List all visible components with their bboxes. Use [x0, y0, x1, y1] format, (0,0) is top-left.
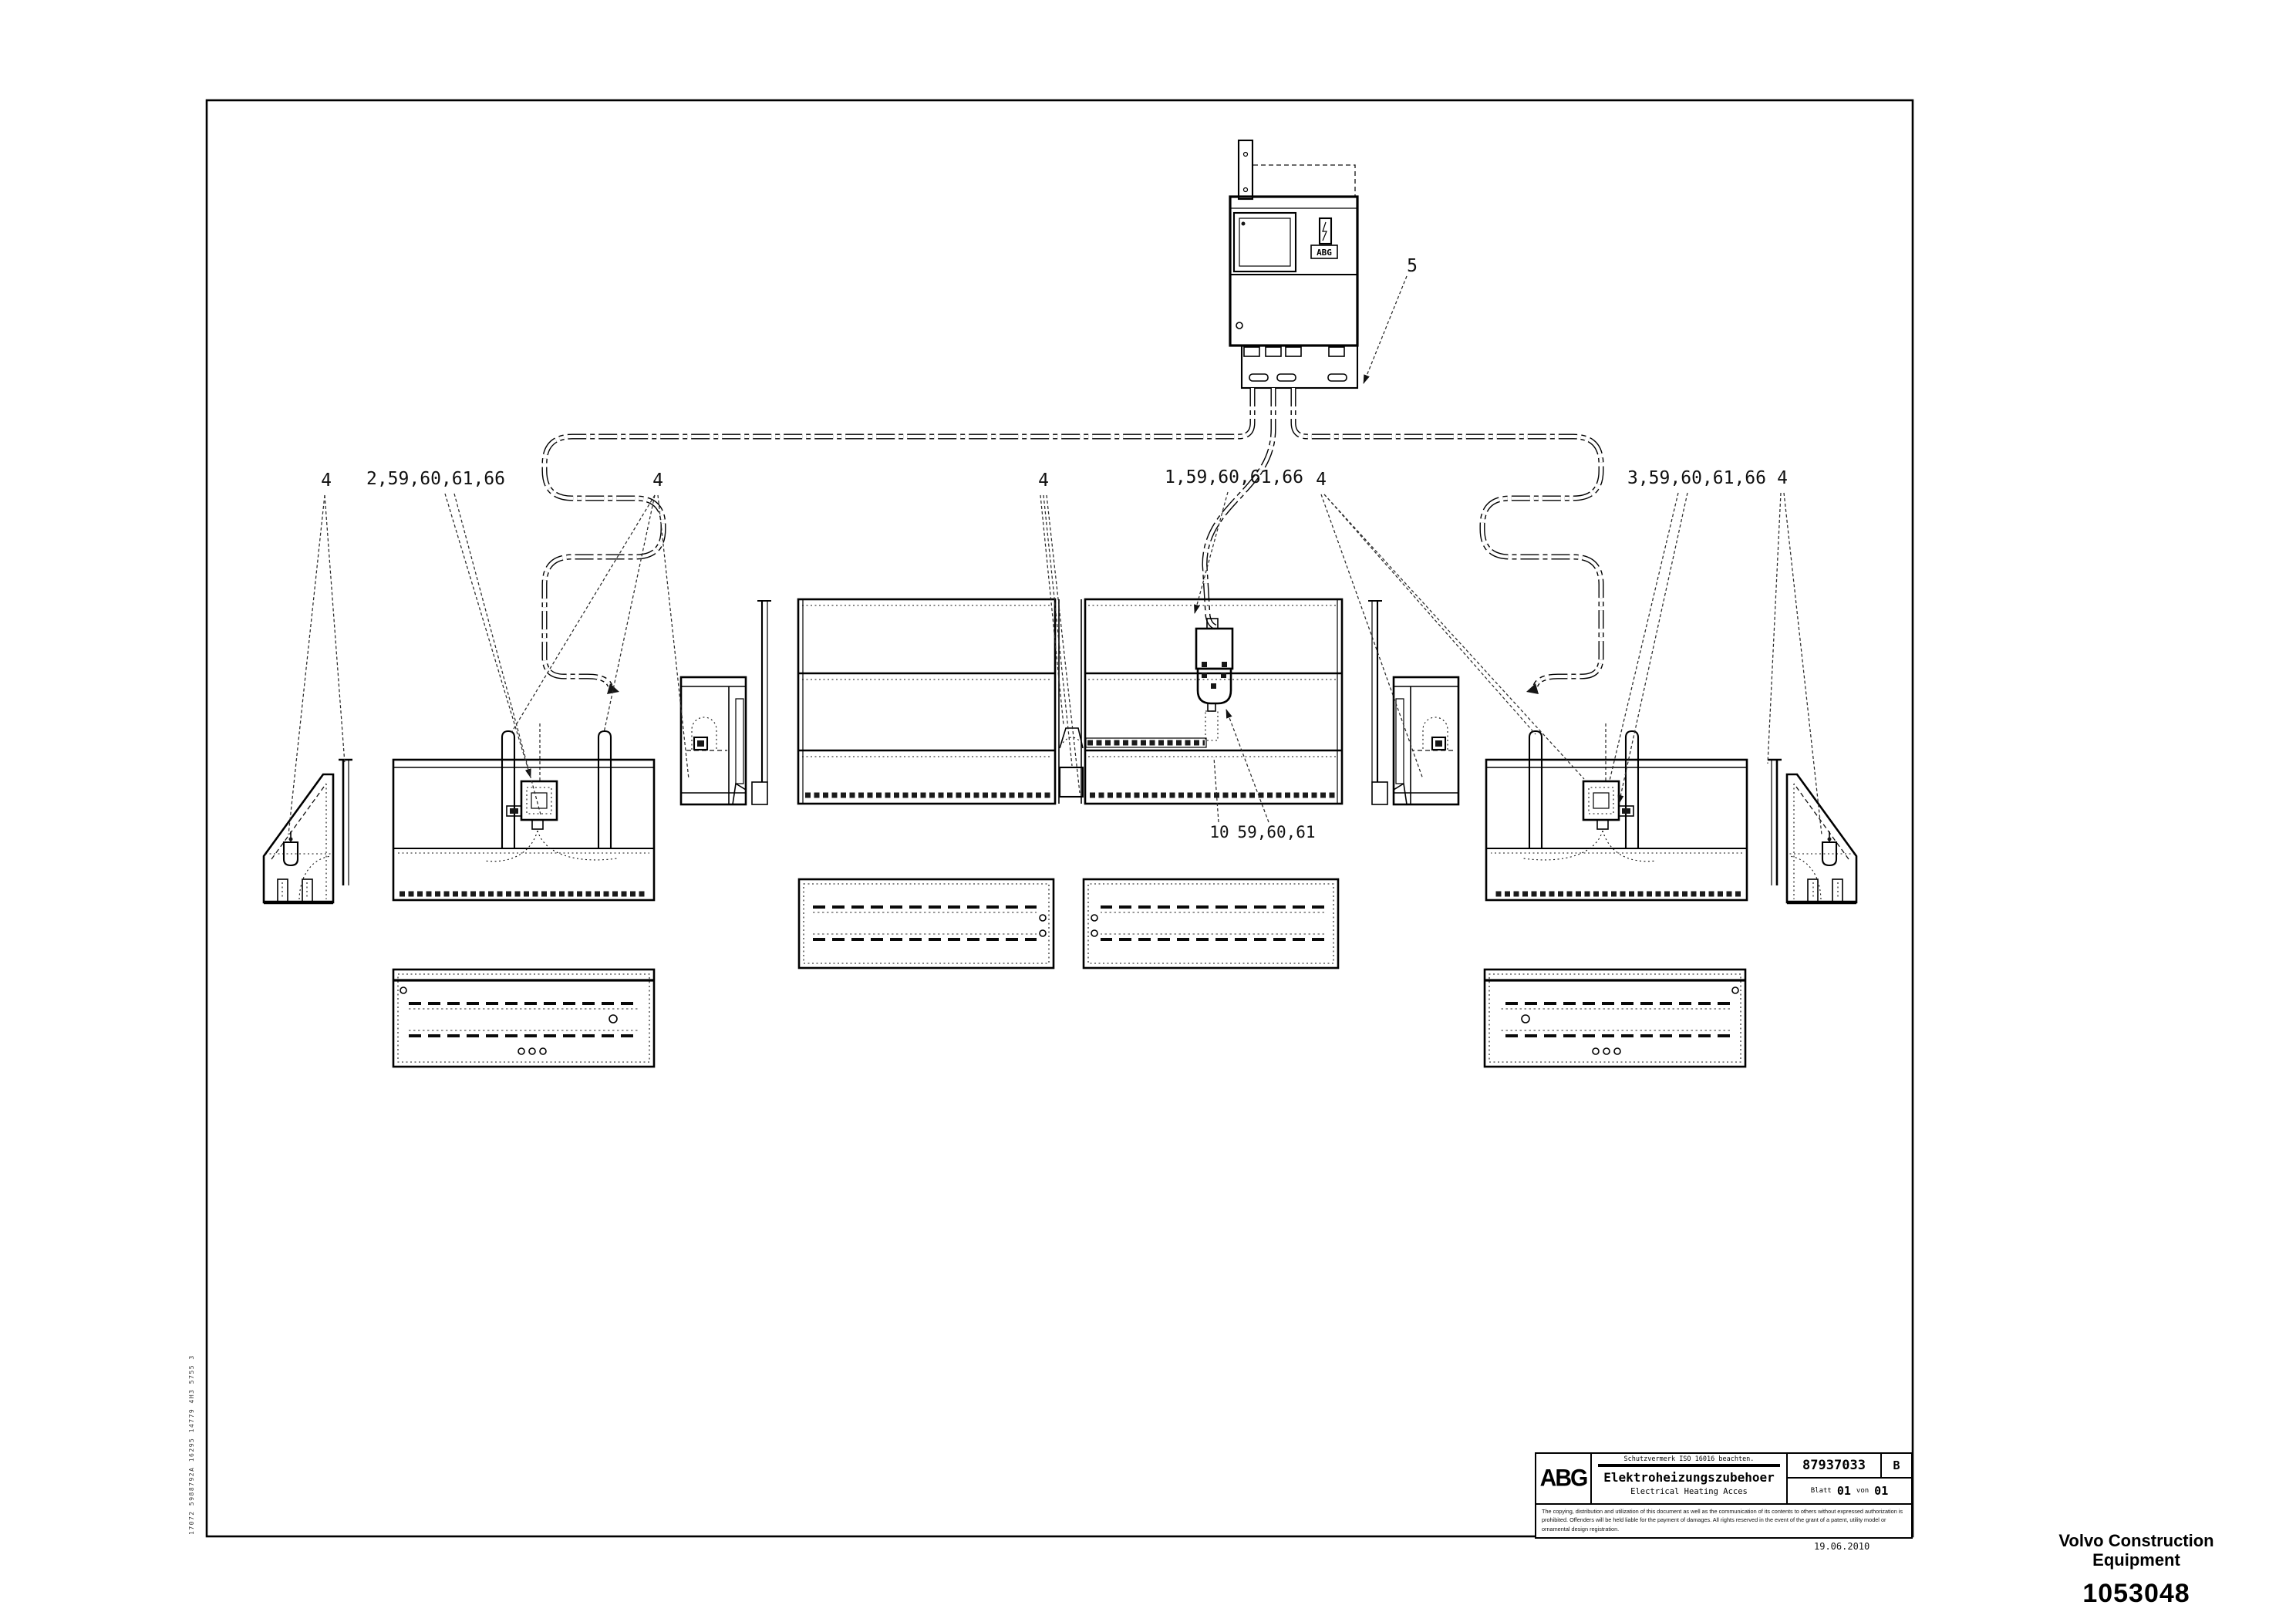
main-screed: [798, 599, 1342, 804]
heating-cable-right: [1293, 388, 1606, 781]
callout-4-section-right: 4: [1316, 470, 1327, 490]
callout-4-section-left: 4: [652, 470, 663, 491]
heating-control-box: ABG: [1230, 140, 1357, 388]
plot-stamp: 17072 5988792A 16295 14779 4H3 5755 3: [188, 1354, 195, 1535]
abg-badge-text: ABG: [1317, 248, 1332, 258]
callout-2-group: 2,59,60,61,66: [366, 469, 505, 489]
extension-screed-left: [393, 731, 654, 900]
cabinet-door: [1234, 213, 1296, 271]
heating-cable-left: [540, 388, 1253, 781]
central-junction-box: [1086, 619, 1232, 747]
screed-centre-section: [1059, 599, 1083, 804]
callout-4-tamper: 4: [1038, 470, 1049, 491]
bolt-on-section-right: [1368, 601, 1458, 804]
legal-line-1: The copying, distribution and utilizatio…: [1542, 1507, 1906, 1516]
callout-3-group: 3,59,60,61,66: [1627, 468, 1766, 488]
bolt-on-section-left: [681, 601, 771, 804]
drawing-title-de: Elektroheizungszubehoer: [1592, 1470, 1786, 1485]
sheet-number: 01: [1837, 1484, 1851, 1498]
print-date: 19.06.2010: [1814, 1541, 1870, 1552]
heating-plate-centre-right: [1084, 879, 1338, 968]
revision: B: [1882, 1454, 1911, 1477]
legal-line-3: ornamental design registration.: [1542, 1525, 1906, 1533]
heating-plate-centre-left: [799, 879, 1054, 968]
callout-1-group: 1,59,60,61,66: [1165, 467, 1303, 487]
callout-59-60-61: 59,60,61: [1237, 823, 1315, 841]
drawing-frame: [207, 100, 1913, 1536]
heating-plate-bottom-left: [393, 969, 654, 1067]
heating-plate-bottom-right: [1485, 969, 1745, 1067]
callout-10: 10: [1209, 823, 1229, 841]
drawing-number: 87937033: [1788, 1454, 1882, 1477]
callout-4-gate-right: 4: [1777, 468, 1788, 488]
legal-text: The copying, distribution and utilizatio…: [1536, 1505, 1911, 1537]
protection-note: Schutzvermerk ISO 16016 beachten.: [1592, 1455, 1786, 1463]
end-gate-left: [264, 760, 352, 902]
abg-logo: ABG: [1536, 1452, 1592, 1504]
main-screed-right-panel: [1085, 599, 1342, 804]
mounting-mast: [1239, 140, 1253, 199]
parts-diagram: ABG: [0, 0, 2296, 1622]
title-block: ABG Schutzvermerk ISO 16016 beachten. El…: [1535, 1452, 1913, 1539]
callout-5-control-box: 5: [1407, 256, 1418, 276]
end-gate-right: [1768, 760, 1856, 902]
of-total: 01: [1874, 1484, 1888, 1498]
sheet-word: Blatt: [1811, 1487, 1832, 1495]
main-screed-left-panel: [798, 599, 1055, 804]
company-name-line2: Equipment: [2017, 1550, 2256, 1570]
document-number: 1053048: [2017, 1579, 2256, 1609]
of-word: von: [1856, 1487, 1869, 1495]
callout-4-gate-left: 4: [321, 470, 332, 491]
extension-screed-right: [1486, 731, 1747, 900]
publisher-block: Volvo Construction Equipment 1053048: [2017, 1531, 2256, 1609]
company-name-line1: Volvo Construction: [2017, 1531, 2256, 1550]
legal-line-2: prohibited. Offenders will be held liabl…: [1542, 1516, 1906, 1524]
drawing-title-en: Electrical Heating Acces: [1592, 1487, 1786, 1496]
heating-cable-center: [1205, 388, 1273, 627]
title-divider: [1598, 1464, 1780, 1467]
